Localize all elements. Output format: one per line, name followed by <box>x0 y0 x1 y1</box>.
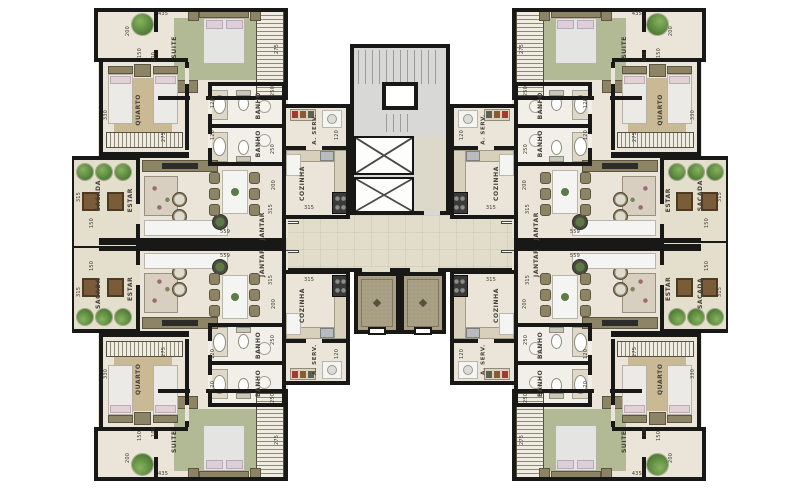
stair-treads <box>358 50 442 84</box>
wall <box>208 124 286 128</box>
door-opening <box>185 68 189 84</box>
balcony-plant-icon <box>688 164 704 180</box>
dim-closet-width: 200 <box>669 26 674 36</box>
room-label-estar: ESTAR <box>128 277 134 301</box>
balcony-plant-icon <box>707 164 723 180</box>
dim-banho-depth: 120 <box>584 349 589 359</box>
unit-entry-threshold <box>368 327 386 335</box>
dim-sacada-depth: 315 <box>77 192 82 202</box>
wall <box>158 389 288 393</box>
dim-living-wall: 559 <box>570 230 580 235</box>
nightstand <box>250 11 261 21</box>
room-label-quarto: QUARTO <box>658 363 664 395</box>
room-label-banho: BANHO <box>256 332 262 359</box>
dim-quarto-width: 275 <box>633 347 638 357</box>
balcony-chair <box>107 278 124 297</box>
bed-headboard <box>622 66 647 74</box>
dim-suite-depth: 275 <box>520 435 525 445</box>
wall <box>514 403 592 407</box>
bed-pillow <box>206 460 223 469</box>
room-label-estar: ESTAR <box>666 277 672 301</box>
dim-banho-width: 250 <box>271 86 276 96</box>
door-opening <box>306 146 322 150</box>
door-opening <box>642 439 646 457</box>
room-label-banho: BANHO <box>256 92 262 119</box>
elevator-x-icon <box>356 179 412 211</box>
elevator <box>354 136 414 175</box>
balcony-chair <box>676 192 693 211</box>
dim-aserv: 120 <box>460 349 465 359</box>
nightstand <box>539 11 550 21</box>
dining-chair <box>209 273 220 285</box>
balcony-plant-icon <box>115 309 131 325</box>
room-label-banho: BANHO <box>538 92 544 119</box>
apartment-unit: SUITE 435 275 200 150 100 QUARTO 330 275… <box>70 244 350 481</box>
dim-aserv: 120 <box>335 349 340 359</box>
dim-closet-depth: 150 <box>138 48 143 58</box>
dim-cozinha-width: 315 <box>486 278 496 283</box>
balcony-plant-icon <box>77 164 93 180</box>
bed-headboard <box>153 415 178 423</box>
door-opening <box>660 204 664 224</box>
dining-chair <box>580 273 591 285</box>
dim-cozinha-width: 315 <box>304 206 314 211</box>
apartment-unit: SUITE 435 275 200 150 100 QUARTO 330 275… <box>450 8 730 245</box>
laundry-item <box>292 111 298 118</box>
dim-quarto-depth: 330 <box>104 369 109 379</box>
wall <box>99 58 103 158</box>
dim-cozinha-depth: 200 <box>272 299 277 309</box>
wall <box>702 427 706 481</box>
dim-cozinha-depth: 200 <box>523 180 528 190</box>
balcony-plant-icon <box>707 309 723 325</box>
room-label-sacada: SACADA <box>698 278 704 309</box>
side-table-plant <box>572 214 588 230</box>
wall <box>512 8 706 12</box>
side-table-plant <box>212 214 228 230</box>
dining-chair <box>580 305 591 317</box>
pouf <box>613 282 628 297</box>
balcony-wall <box>726 241 728 331</box>
fridge-icon <box>499 313 514 335</box>
quarto-dresser <box>649 412 666 425</box>
dim-sacada-width: 150 <box>705 218 710 228</box>
dim-closet-width: 200 <box>126 26 131 36</box>
wall <box>450 104 454 219</box>
apartment-unit: SUITE 435 275 200 150 100 QUARTO 330 275… <box>450 244 730 481</box>
bed-headboard <box>108 66 133 74</box>
dining-chair <box>540 172 551 184</box>
wall <box>450 270 518 274</box>
dim-jantar: 315 <box>526 204 531 214</box>
dim-quarto-depth: 330 <box>104 110 109 120</box>
dim-sacada-depth: 315 <box>718 192 723 202</box>
balcony-plant-icon <box>669 309 685 325</box>
dim-sacada-depth: 315 <box>718 287 723 297</box>
door-opening <box>424 211 440 215</box>
bed-pillow <box>155 405 176 413</box>
hall-foyer <box>354 272 400 334</box>
table-centerpiece <box>231 188 239 196</box>
unit-entry-threshold <box>414 327 432 335</box>
dim-cozinha-depth: 200 <box>272 180 277 190</box>
wall <box>94 427 98 481</box>
wall <box>660 241 664 331</box>
bed-pillow <box>577 20 594 29</box>
closet-plant-icon <box>647 454 668 475</box>
dim-banho-width: 250 <box>271 393 276 403</box>
room-label-banho: BANHO <box>256 130 262 157</box>
room-label-aserv: A. SERV. <box>313 344 319 375</box>
toilet-tank <box>236 393 251 399</box>
bed-pillow <box>226 460 243 469</box>
wall <box>514 162 592 166</box>
dim-banho-depth: 120 <box>211 381 216 391</box>
party-wall <box>514 244 701 251</box>
bed-headboard <box>153 66 178 74</box>
dim-sacada-width: 150 <box>90 261 95 271</box>
dim-cozinha-width: 315 <box>486 206 496 211</box>
pouf <box>172 192 187 207</box>
dim-jantar: 315 <box>269 204 274 214</box>
dining-chair <box>540 188 551 200</box>
dim-banho-width: 250 <box>271 335 276 345</box>
laundry-item <box>292 371 298 378</box>
dim-banho-width: 250 <box>524 335 529 345</box>
quarto-wardrobe <box>106 132 183 148</box>
dim-banho-depth: 120 <box>211 98 216 108</box>
bed-headboard <box>199 11 249 18</box>
dim-suite-depth: 275 <box>275 44 280 54</box>
room-label-quarto: QUARTO <box>658 94 664 126</box>
kitchen-sink-icon <box>466 328 480 338</box>
dim-banho-depth: 120 <box>211 349 216 359</box>
washer-drum <box>463 365 473 375</box>
wall <box>660 158 664 248</box>
bed-headboard <box>108 415 133 423</box>
wall <box>702 8 706 62</box>
quarto-dresser <box>649 64 666 77</box>
dim-living-wall: 559 <box>570 254 580 259</box>
dim-closet-depth: 150 <box>657 48 662 58</box>
dim-banho-width: 250 <box>271 144 276 154</box>
wall <box>208 162 286 166</box>
room-label-sacada: SACADA <box>698 180 704 211</box>
laundry-item <box>494 371 500 378</box>
room-label-banho: BANHO <box>538 370 544 397</box>
balcony-wall <box>72 158 74 248</box>
door-opening <box>185 405 189 421</box>
dining-chair <box>249 305 260 317</box>
room-label-suite: SUITE <box>172 36 178 59</box>
tv-icon <box>602 320 638 326</box>
dim-suite-depth: 275 <box>275 435 280 445</box>
toilet-tank <box>236 327 251 333</box>
door-opening <box>154 32 158 50</box>
door-opening <box>136 265 140 285</box>
dim-closet-depth: 150 <box>138 431 143 441</box>
wall <box>282 215 350 219</box>
bed-pillow <box>110 405 131 413</box>
room-label-estar: ESTAR <box>128 188 134 212</box>
balcony-wall <box>72 246 138 248</box>
balcony-plant-icon <box>96 309 112 325</box>
dining-chair <box>209 289 220 301</box>
room-label-cozinha: COZINHA <box>300 288 306 323</box>
wall <box>136 158 140 248</box>
elevator-x-icon <box>356 138 412 173</box>
room-label-banho: BANHO <box>256 370 262 397</box>
dim-suite-width: 435 <box>632 472 642 477</box>
bed-headboard <box>667 66 692 74</box>
laundry-item <box>494 111 500 118</box>
wall <box>346 104 350 219</box>
dining-chair <box>209 188 220 200</box>
toilet-icon <box>238 334 249 349</box>
balcony-plant-icon <box>669 164 685 180</box>
balcony-wall <box>662 156 728 160</box>
stair-landing <box>382 82 418 110</box>
door-opening <box>190 96 206 100</box>
dim-suite-width: 435 <box>158 12 168 17</box>
door-opening <box>611 68 615 84</box>
toilet-icon <box>551 140 562 155</box>
dim-passage: 100 <box>643 427 648 437</box>
door-opening <box>594 389 610 393</box>
balcony-wall <box>662 241 728 243</box>
quarto-dresser <box>134 64 151 77</box>
door-opening <box>154 439 158 457</box>
room-label-suite: SUITE <box>622 430 628 453</box>
room-label-banho: BANHO <box>538 130 544 157</box>
wall <box>284 104 350 108</box>
door-opening <box>660 265 664 285</box>
dim-banho-width: 250 <box>524 86 529 96</box>
dim-closet-depth: 150 <box>657 431 662 441</box>
bed-pillow <box>110 76 131 84</box>
dining-chair <box>249 172 260 184</box>
balcony-chair <box>676 278 693 297</box>
bed-pillow <box>557 20 574 29</box>
dim-living-wall: 559 <box>220 254 230 259</box>
dim-jantar: 315 <box>526 275 531 285</box>
dim-banho-depth: 120 <box>584 381 589 391</box>
pouf <box>172 282 187 297</box>
room-label-banho: BANHO <box>538 332 544 359</box>
dim-sacada-width: 150 <box>90 218 95 228</box>
room-label-estar: ESTAR <box>666 188 672 212</box>
balcony-plant-icon <box>96 164 112 180</box>
dim-banho-depth: 120 <box>584 98 589 108</box>
tv-icon <box>162 163 198 169</box>
room-label-jantar: JANTAR <box>534 249 540 277</box>
quarto-wardrobe <box>106 341 183 357</box>
wall <box>450 104 516 108</box>
balcony-plant-icon <box>77 309 93 325</box>
laundry-item <box>300 111 306 118</box>
room-label-sacada: SACADA <box>96 180 102 211</box>
dim-passage: 100 <box>643 52 648 62</box>
tv-icon <box>602 163 638 169</box>
dim-passage: 100 <box>152 427 157 437</box>
dim-passage: 100 <box>152 52 157 62</box>
washer-drum <box>327 365 337 375</box>
wall <box>136 241 140 331</box>
room-label-sacada: SACADA <box>96 278 102 309</box>
dim-cozinha-width: 315 <box>304 278 314 283</box>
bed-pillow <box>624 405 645 413</box>
balcony-wall <box>726 158 728 248</box>
bed-headboard <box>551 11 601 18</box>
laundry-item <box>502 111 508 118</box>
dim-sacada-depth: 315 <box>77 287 82 297</box>
room-label-aserv: A. SERV. <box>482 114 488 145</box>
room-label-quarto: QUARTO <box>136 363 142 395</box>
dining-chair <box>209 204 220 216</box>
dining-chair <box>540 204 551 216</box>
dim-suite-depth: 275 <box>520 44 525 54</box>
pouf <box>613 192 628 207</box>
dim-closet-width: 200 <box>669 453 674 463</box>
door-opening <box>611 405 615 421</box>
quarto-wardrobe <box>617 341 694 357</box>
bed-pillow <box>206 20 223 29</box>
bed-pillow <box>669 76 690 84</box>
wall <box>346 270 350 385</box>
wall <box>514 323 592 327</box>
room-label-cozinha: COZINHA <box>494 288 500 323</box>
dim-banho-width: 250 <box>524 144 529 154</box>
dining-chair <box>580 172 591 184</box>
wall <box>284 381 350 385</box>
room-label-cozinha: COZINHA <box>300 166 306 201</box>
kitchen-sink-icon <box>466 151 480 161</box>
dim-quarto-depth: 330 <box>691 110 696 120</box>
wall <box>697 331 701 431</box>
wall <box>512 96 642 100</box>
toilet-tank <box>549 393 564 399</box>
wall <box>282 270 350 274</box>
elevator <box>354 177 414 213</box>
wall <box>208 361 286 365</box>
room-label-aserv: A. SERV. <box>313 114 319 145</box>
door-opening <box>478 146 494 150</box>
wall <box>208 403 286 407</box>
door-opening <box>642 32 646 50</box>
room-label-suite: SUITE <box>172 430 178 453</box>
balcony-plant-icon <box>688 309 704 325</box>
wall <box>208 323 286 327</box>
bed-pillow <box>624 76 645 84</box>
balcony-wall <box>72 241 74 331</box>
table-centerpiece <box>231 293 239 301</box>
wall <box>450 215 518 219</box>
room-label-jantar: JANTAR <box>534 212 540 240</box>
dining-chair <box>580 204 591 216</box>
stair-treads <box>386 114 414 132</box>
door-opening <box>190 389 206 393</box>
floor-plan: SUITE 435 275 200 150 100 QUARTO 330 275… <box>0 0 800 489</box>
dining-chair <box>580 188 591 200</box>
balcony-wall <box>72 156 138 160</box>
door-opening <box>306 339 322 343</box>
room-label-suite: SUITE <box>622 36 628 59</box>
dim-closet-width: 200 <box>126 453 131 463</box>
dim-quarto-depth: 330 <box>691 369 696 379</box>
wall <box>512 477 706 481</box>
balcony-plant-icon <box>115 164 131 180</box>
room-label-jantar: JANTAR <box>260 212 266 240</box>
apartment-unit: SUITE 435 275 200 150 100 QUARTO 330 275… <box>70 8 350 245</box>
dining-chair <box>540 289 551 301</box>
kitchen-sink-icon <box>320 328 334 338</box>
dim-cozinha-depth: 200 <box>523 299 528 309</box>
nightstand <box>188 11 199 21</box>
bed-pillow <box>669 405 690 413</box>
dim-quarto-width: 275 <box>162 347 167 357</box>
dim-banho-width: 250 <box>524 393 529 403</box>
table-centerpiece <box>561 293 569 301</box>
closet-plant-icon <box>132 14 153 35</box>
door-opening <box>136 204 140 224</box>
toilet-icon <box>551 334 562 349</box>
wall <box>94 8 288 12</box>
dim-living-wall: 559 <box>220 230 230 235</box>
dining-chair <box>209 305 220 317</box>
room-label-quarto: QUARTO <box>136 94 142 126</box>
laundry-item <box>300 371 306 378</box>
closet-plant-icon <box>132 454 153 475</box>
party-wall <box>99 238 286 245</box>
room-label-cozinha: COZINHA <box>494 166 500 201</box>
toilet-icon <box>238 140 249 155</box>
balcony-wall <box>662 329 728 333</box>
dim-quarto-width: 275 <box>162 132 167 142</box>
bed-pillow <box>226 20 243 29</box>
wall <box>94 8 98 62</box>
tv-icon <box>162 320 198 326</box>
dining-chair <box>249 289 260 301</box>
wall <box>697 58 701 158</box>
bed-headboard <box>667 415 692 423</box>
quarto-wardrobe <box>617 132 694 148</box>
dim-aserv: 120 <box>335 130 340 140</box>
elevator-lobby <box>416 136 446 212</box>
dining-chair <box>540 305 551 317</box>
dim-banho-depth: 120 <box>211 130 216 140</box>
door-opening <box>478 339 494 343</box>
fridge-icon <box>499 154 514 176</box>
dim-aserv: 120 <box>460 130 465 140</box>
kitchen-sink-icon <box>320 151 334 161</box>
dim-suite-width: 435 <box>158 472 168 477</box>
wall <box>514 124 592 128</box>
dining-chair <box>540 273 551 285</box>
wall <box>450 381 516 385</box>
wall <box>450 270 454 385</box>
dining-chair <box>249 188 260 200</box>
balcony-chair <box>107 192 124 211</box>
dining-chair <box>580 289 591 301</box>
nightstand <box>601 11 612 21</box>
dim-quarto-width: 275 <box>633 132 638 142</box>
dim-jantar: 315 <box>269 275 274 285</box>
washer-drum <box>327 114 337 124</box>
wall <box>512 389 642 393</box>
quarto-dresser <box>134 412 151 425</box>
dim-suite-width: 435 <box>632 12 642 17</box>
dim-sacada-width: 150 <box>705 261 710 271</box>
